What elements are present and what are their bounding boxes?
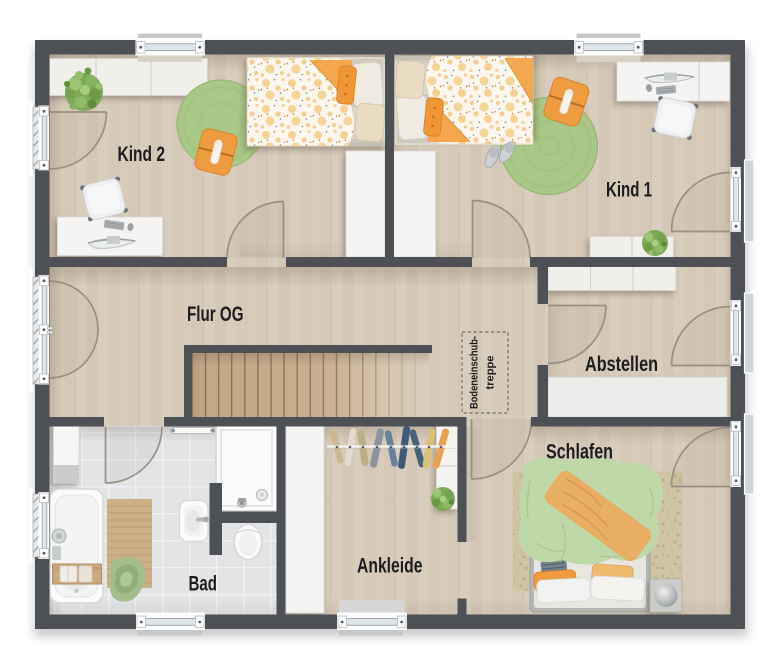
svg-text:Kind 1: Kind 1 — [606, 179, 652, 202]
svg-text:Schlafen: Schlafen — [546, 441, 613, 464]
svg-text:treppe: treppe — [485, 356, 497, 390]
svg-text:Flur OG: Flur OG — [187, 303, 244, 326]
svg-text:Bodeneinschub-: Bodeneinschub- — [469, 336, 481, 409]
svg-text:Abstellen: Abstellen — [585, 353, 658, 376]
svg-text:Ankleide: Ankleide — [357, 555, 423, 578]
svg-text:Kind 2: Kind 2 — [118, 143, 166, 166]
svg-text:Bad: Bad — [189, 573, 218, 596]
